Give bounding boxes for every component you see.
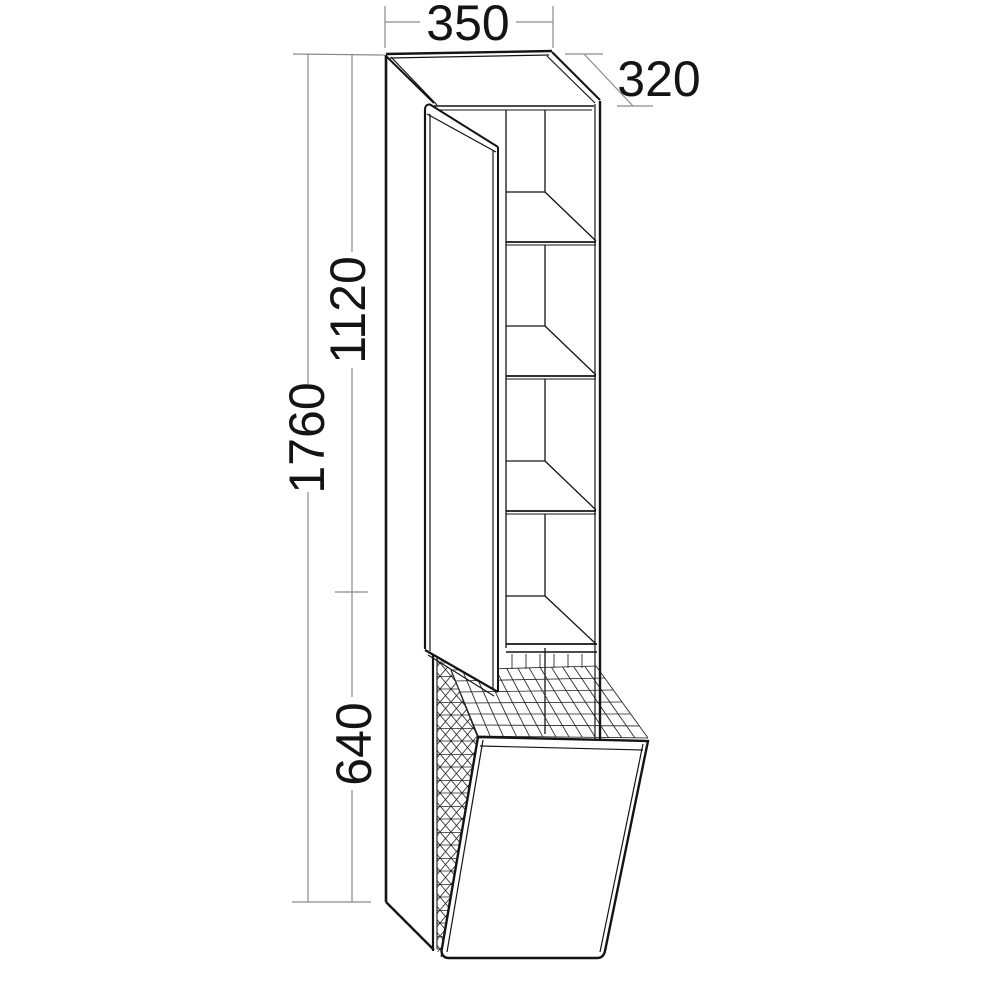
open-door [425, 104, 498, 696]
dimension-label-depth: 320 [617, 51, 700, 107]
dimension-label-total-height: 1760 [279, 382, 335, 493]
top-right-edge-inner [547, 56, 595, 103]
bottom-left-edge [386, 902, 434, 950]
dimension-label-upper-height: 1120 [320, 256, 376, 364]
top-right-edge [552, 52, 600, 100]
extension-line-top [293, 54, 385, 55]
top-back-edge [386, 51, 552, 54]
top-left-edge-inner [391, 57, 437, 105]
open-door-face [425, 104, 498, 692]
top-left-edge [386, 56, 434, 103]
technical-drawing-page: 350 320 1760 1120 640 [0, 0, 1000, 1000]
shelf-1 [506, 192, 596, 245]
tilt-door-face [442, 737, 649, 958]
shelf-3 [506, 461, 596, 514]
cabinet-technical-drawing: 350 320 1760 1120 640 [0, 0, 1000, 1000]
top-back-edge-inner [390, 55, 549, 58]
dimension-label-width: 350 [426, 0, 509, 51]
shelf-4-divider [506, 596, 597, 652]
dimension-label-lower-height: 640 [326, 702, 382, 785]
tilt-out-door [442, 737, 649, 958]
shelf-2 [506, 326, 596, 379]
